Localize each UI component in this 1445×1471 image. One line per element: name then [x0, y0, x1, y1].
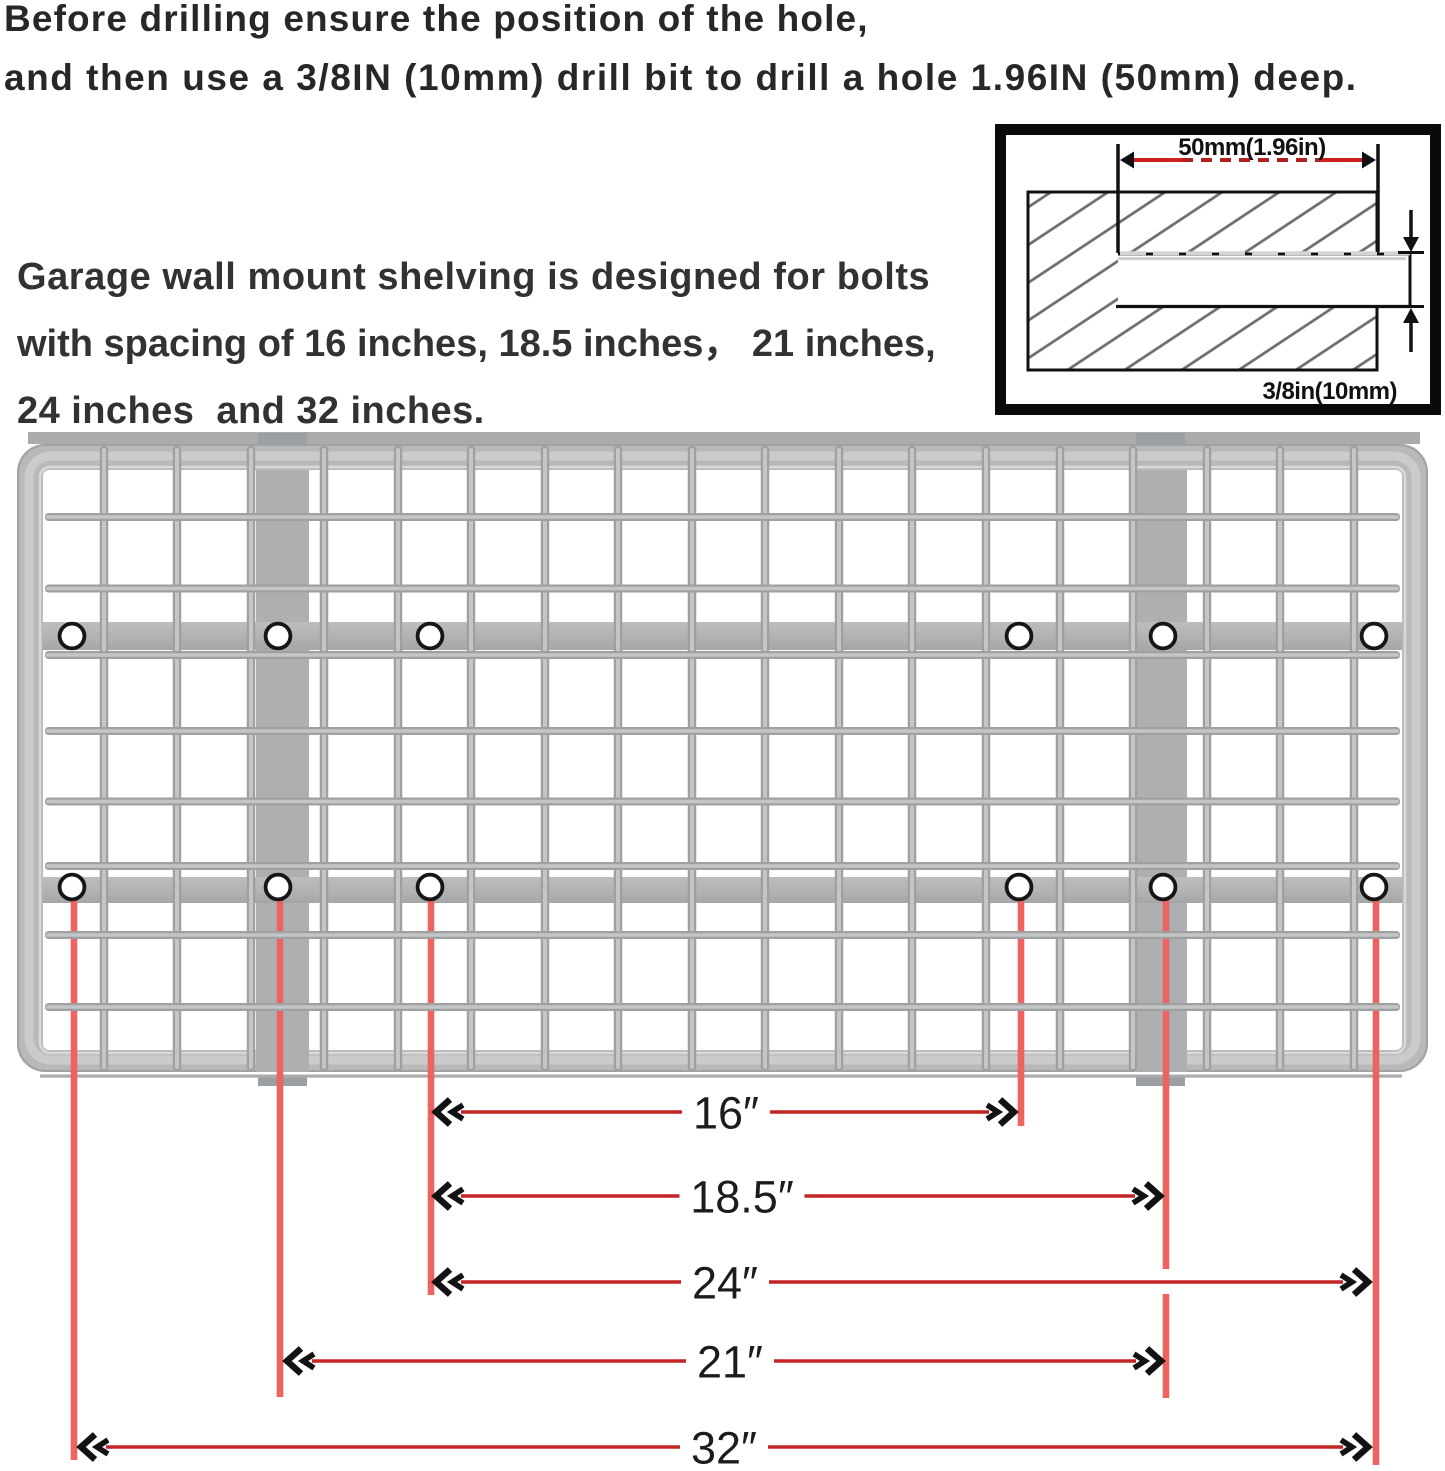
- svg-text:18.5″: 18.5″: [690, 1172, 794, 1223]
- svg-text:21″: 21″: [697, 1337, 763, 1388]
- svg-text:3/8in(10mm): 3/8in(10mm): [1262, 378, 1397, 405]
- svg-text:50mm(1.96in): 50mm(1.96in): [1178, 134, 1325, 161]
- svg-text:24″: 24″: [692, 1258, 758, 1309]
- svg-text:16″: 16″: [693, 1088, 759, 1139]
- svg-text:32″: 32″: [691, 1423, 757, 1471]
